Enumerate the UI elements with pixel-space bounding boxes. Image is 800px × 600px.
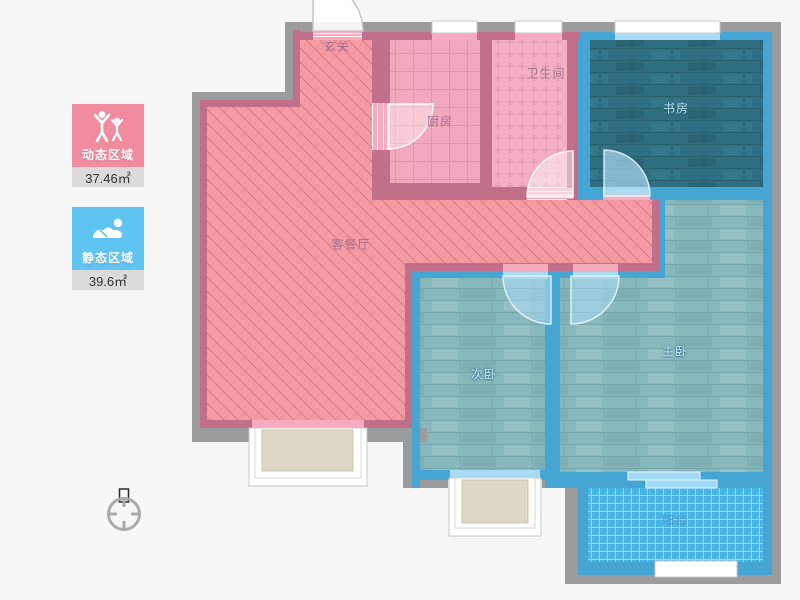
legend-dynamic-zone-label: 动态区域 (82, 146, 134, 167)
kitchen-window (432, 21, 477, 40)
room-balcony-floor[interactable] (588, 488, 763, 562)
second-bedroom-bay-window (449, 478, 541, 536)
people-active-icon (88, 111, 128, 147)
living-bay-window (249, 420, 367, 486)
entrance-door-arc (313, 0, 363, 31)
legend-static-zone[interactable]: 静态区域 39.6㎡ (72, 207, 144, 290)
second-bedroom-window-sill (450, 470, 540, 478)
legend-static-zone-area: 39.6㎡ (72, 270, 144, 290)
bathroom-window (515, 21, 562, 40)
legend-dynamic-zone[interactable]: 动态区域 37.46㎡ (72, 104, 144, 187)
legend-static-zone-box[interactable]: 静态区域 (72, 207, 144, 270)
balcony-window (655, 561, 737, 577)
kitchen-door-sill (373, 103, 389, 150)
floor-plan-stage: 玄关 厨房 卫生间 书房 客餐厅 次卧 主卧 阳台 动态区域 37.46㎡ 静态… (0, 0, 800, 600)
floor-plan-canvas (0, 0, 800, 600)
study-window (615, 21, 720, 40)
legend-dynamic-zone-area: 37.46㎡ (72, 167, 144, 187)
legend-dynamic-zone-box[interactable]: 动态区域 (72, 104, 144, 167)
north-compass-icon (109, 489, 140, 530)
legend-static-zone-label: 静态区域 (82, 249, 134, 270)
person-resting-icon (88, 214, 128, 250)
